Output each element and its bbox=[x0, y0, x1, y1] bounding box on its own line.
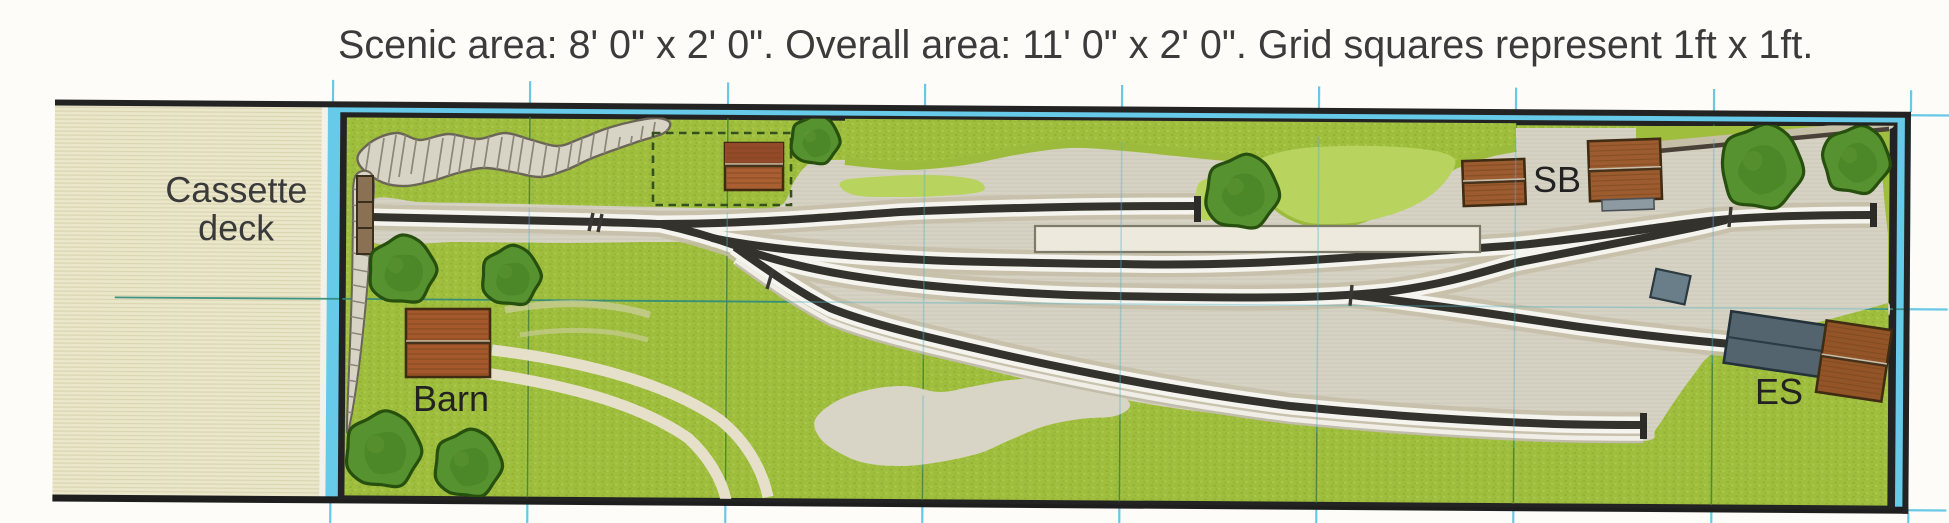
svg-text:SB: SB bbox=[1533, 159, 1581, 200]
svg-text:ES: ES bbox=[1755, 371, 1803, 412]
svg-text:Scenic area: 8' 0" x 2' 0". Ov: Scenic area: 8' 0" x 2' 0". Overall area… bbox=[338, 23, 1813, 67]
svg-text:Barn: Barn bbox=[413, 378, 489, 419]
svg-text:deck: deck bbox=[198, 207, 275, 249]
svg-text:Cassette: Cassette bbox=[165, 169, 307, 211]
